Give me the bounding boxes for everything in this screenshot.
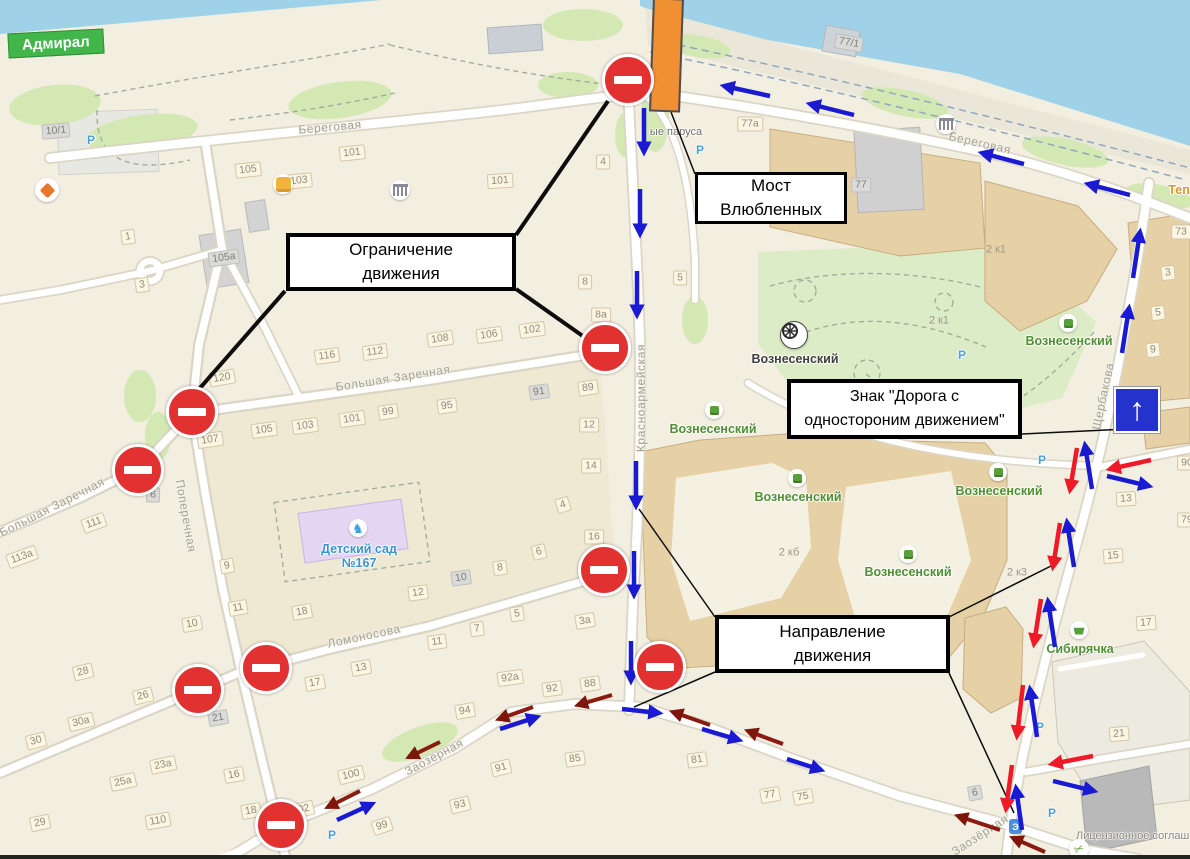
direction-arrow-blue	[622, 709, 659, 713]
direction-arrow-maroon	[748, 731, 783, 744]
callout-napravlenie: Направление движения	[715, 615, 950, 673]
callout-line: Ограничение	[349, 238, 453, 262]
direction-arrow-blue	[1122, 308, 1129, 353]
callout-ogranichenie: Ограничение движения	[286, 233, 516, 291]
direction-arrow-blue	[1107, 476, 1149, 486]
direction-arrow-blue	[1067, 522, 1074, 567]
callout-connector-thin	[1022, 429, 1127, 434]
callout-connector-thin	[634, 672, 715, 707]
direction-arrow-blue	[1085, 445, 1092, 489]
callout-connector-thin	[639, 509, 715, 617]
callout-line: Влюбленных	[720, 198, 822, 222]
map-canvas[interactable]: БереговаяБереговаяКрасноармейскаяЩербако…	[0, 0, 1190, 859]
direction-arrow-red	[1053, 523, 1060, 567]
callout-line: движения	[362, 262, 439, 286]
direction-arrow-blue	[982, 153, 1024, 164]
direction-arrow-red	[1052, 756, 1093, 764]
callout-znak-doroga: Знак "Дорога с одностороним движением"	[787, 379, 1022, 439]
callout-line: Мост	[751, 174, 791, 198]
one-way-arrow-icon: ↑	[1129, 393, 1145, 425]
one-way-road-sign: ↑	[1114, 387, 1160, 433]
direction-arrow-blue	[1053, 781, 1094, 791]
callout-connector-thin	[671, 112, 695, 174]
direction-arrow-red	[1034, 599, 1041, 644]
direction-arrow-maroon	[578, 695, 612, 705]
direction-arrow-blue	[810, 104, 854, 115]
direction-arrow-maroon	[499, 707, 533, 719]
direction-arrow-maroon	[409, 742, 440, 757]
bottom-edge-bar	[0, 855, 1190, 859]
direction-arrow-red	[1070, 448, 1077, 490]
direction-arrow-maroon	[1013, 838, 1045, 852]
callout-line: движения	[794, 644, 871, 668]
callout-connector-thick	[200, 291, 285, 388]
bridge-highlight	[649, 0, 684, 113]
direction-arrow-blue	[1016, 788, 1022, 830]
callout-most-vlyublennykh: Мост Влюбленных	[695, 172, 847, 224]
callout-connector-thin	[949, 673, 1014, 813]
direction-arrow-blue	[1088, 184, 1130, 195]
direction-arrow-red	[1110, 460, 1151, 469]
callout-connector-lines	[200, 101, 1127, 813]
direction-arrow-blue	[1048, 601, 1055, 647]
direction-arrow-maroon	[673, 712, 710, 725]
direction-arrow-blue	[1133, 232, 1140, 278]
direction-arrow-blue	[724, 86, 770, 96]
callout-line: Направление	[779, 620, 885, 644]
direction-arrow-red	[1017, 685, 1023, 736]
direction-arrow-blue	[337, 804, 372, 820]
callout-connector-thick	[516, 289, 587, 339]
direction-arrow-blue	[1030, 689, 1037, 737]
direction-arrow-maroon	[328, 791, 360, 807]
callout-line: одностороним движением"	[804, 409, 1004, 433]
callout-connector-thick	[516, 101, 608, 235]
direction-arrow-maroon	[958, 816, 1000, 830]
direction-arrow-red	[1006, 765, 1012, 809]
direction-arrow-blue	[787, 759, 821, 770]
callout-line: Знак "Дорога с	[850, 385, 959, 409]
direction-arrow-blue	[702, 729, 739, 740]
